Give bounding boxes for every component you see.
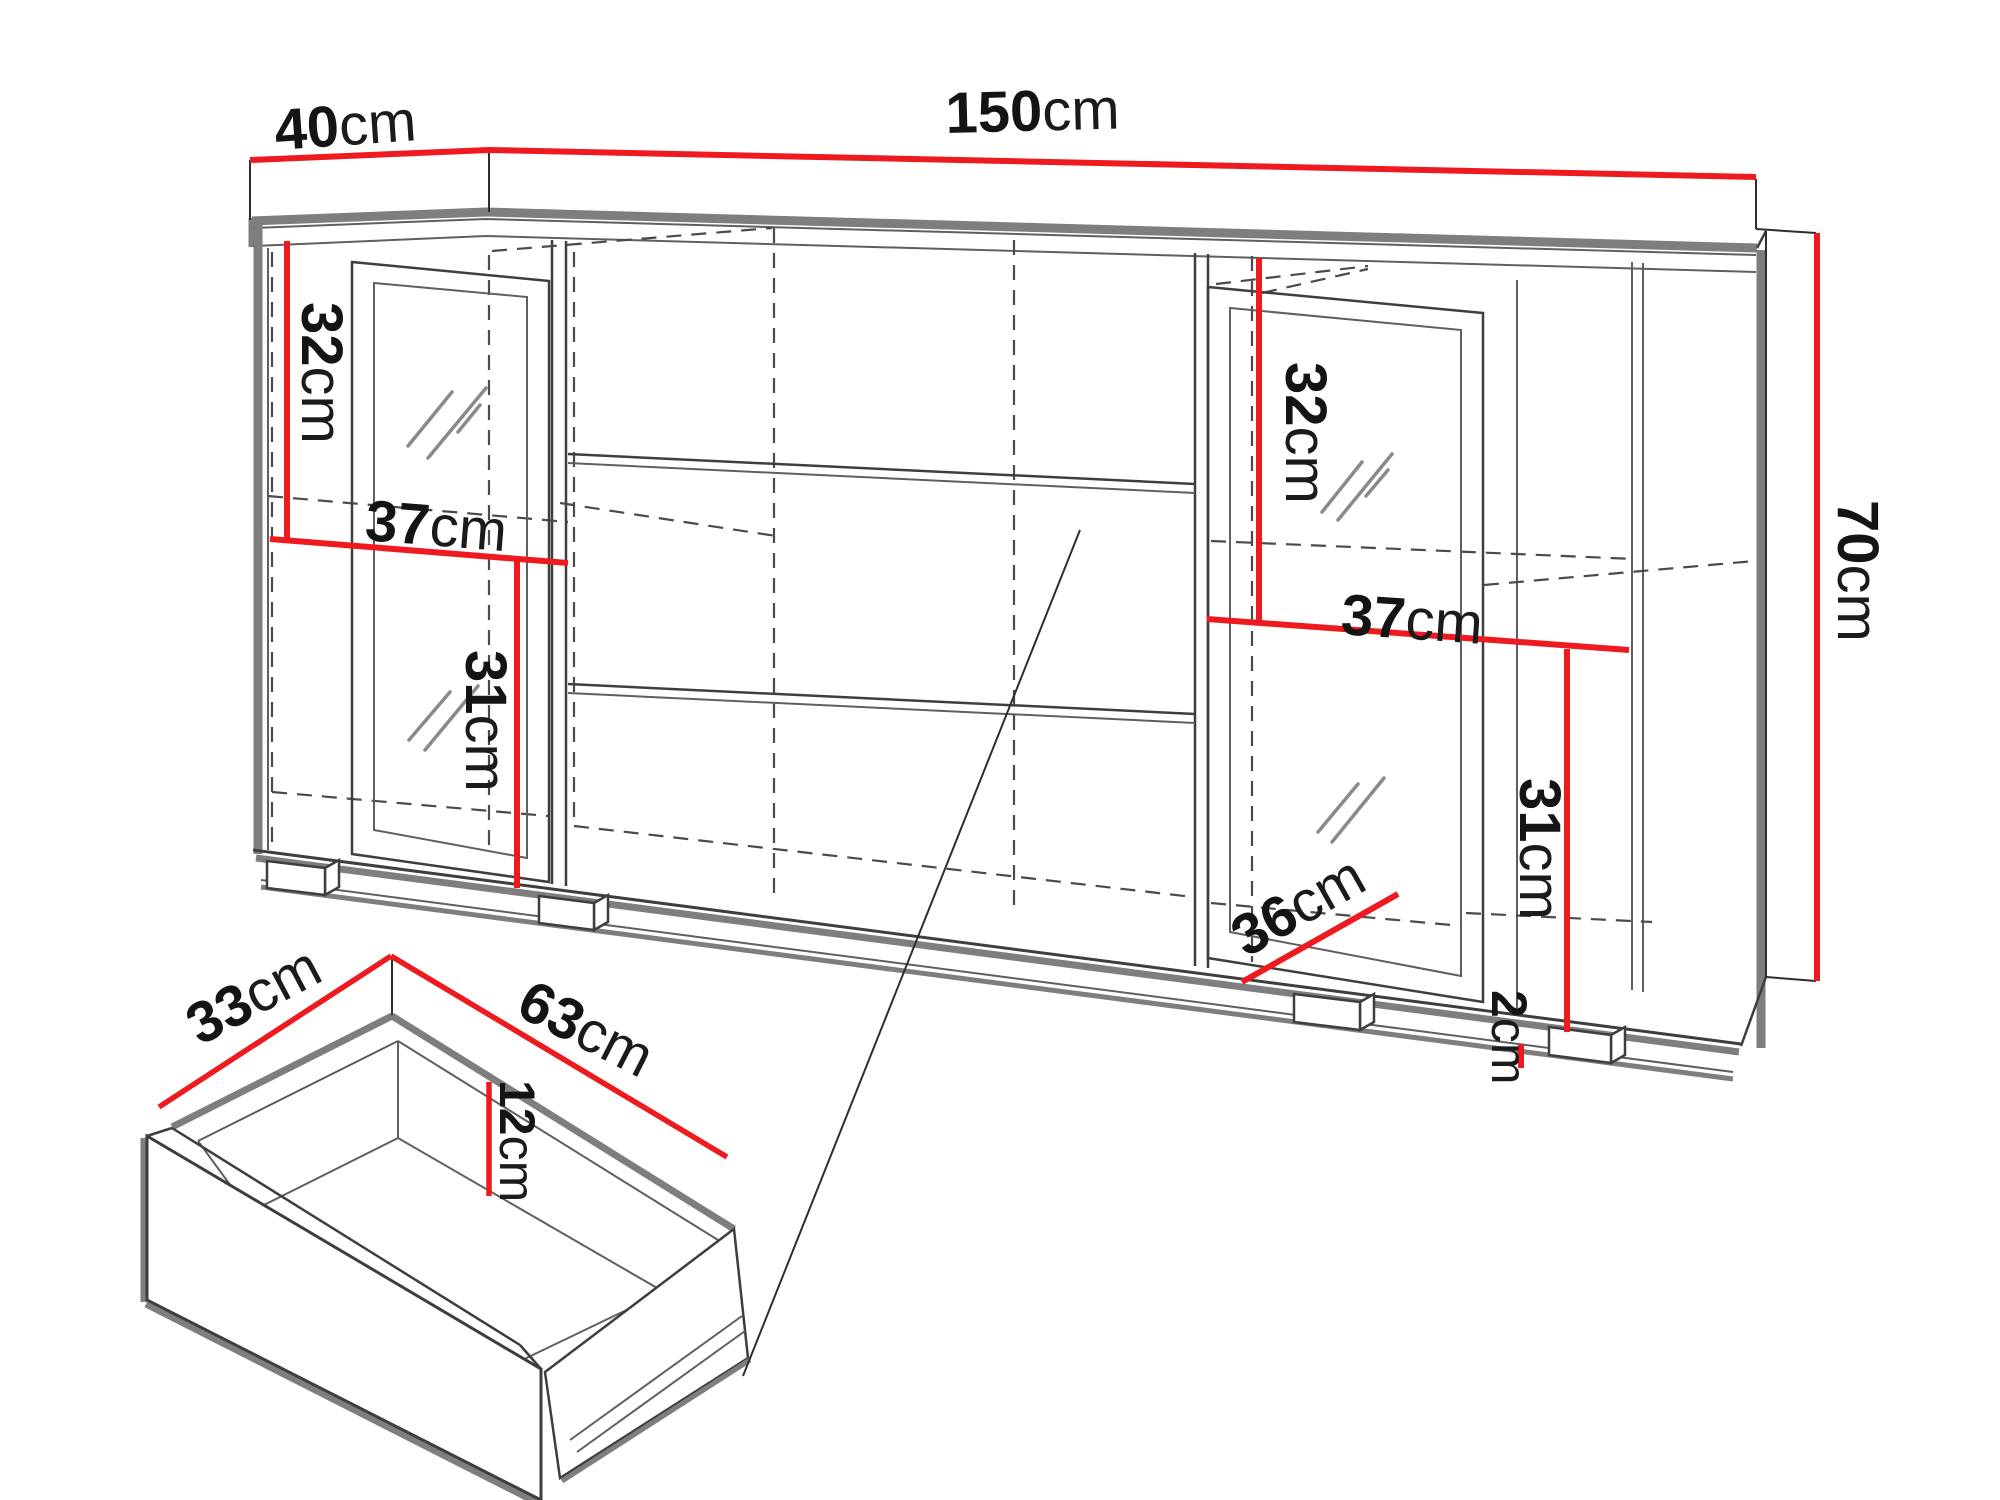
cabinet-base-and-feet: [253, 850, 1816, 1079]
label-top-depth: 40cm: [272, 88, 418, 163]
cabinet-foot: [1549, 1027, 1625, 1063]
leader-line: [743, 530, 1080, 1376]
cabinet-side-panels: [258, 222, 1766, 1048]
label-drawer-depth: 33cm: [176, 933, 332, 1057]
label-left-lower: 31cm: [453, 650, 518, 792]
label-right-lower: 31cm: [1507, 778, 1572, 920]
cabinet-foot: [539, 895, 608, 930]
dimension-diagram: 40cm 150cm 70cm 32cm 37cm 31cm 32cm 37cm…: [0, 0, 2000, 1500]
label-left-upper: 32cm: [289, 302, 354, 444]
label-side-height: 70cm: [1825, 500, 1890, 642]
label-right-upper: 32cm: [1273, 362, 1338, 504]
label-plinth: 2cm: [1481, 990, 1537, 1084]
label-drawer-height: 12cm: [489, 1080, 545, 1202]
label-right-shelf: 37cm: [1339, 582, 1485, 657]
cabinet-top-panel: [250, 152, 1816, 272]
cabinet-shelves: [568, 454, 1195, 723]
label-top-width: 150cm: [945, 76, 1121, 146]
cabinet-drawing: [250, 152, 1816, 1079]
drawer-side-wall: [545, 1229, 750, 1481]
cabinet-foot: [267, 860, 339, 895]
label-left-shelf: 37cm: [363, 488, 510, 564]
drawer-front-panel: [144, 1128, 541, 1500]
dim-line-top-depth-width: [250, 150, 1756, 177]
